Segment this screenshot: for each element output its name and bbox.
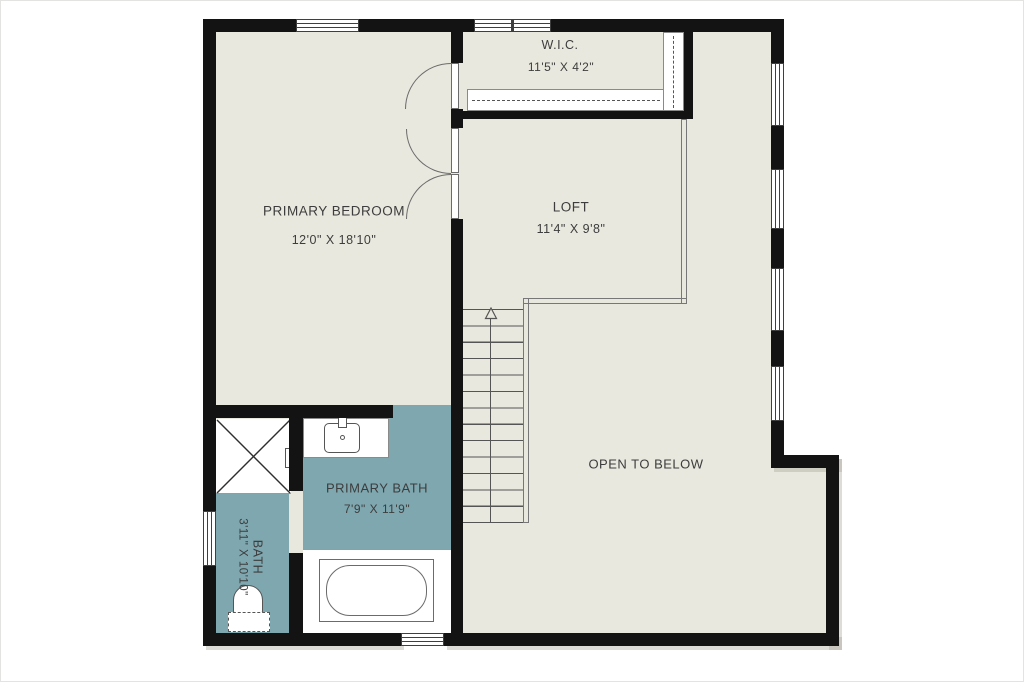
- window-wic-top: [474, 19, 551, 32]
- wall-bedroom-east-a: [451, 32, 463, 63]
- loft-railing-east: [681, 119, 687, 304]
- double-door-leaf-top: [451, 128, 459, 173]
- loft-label: LOFT: [553, 200, 590, 215]
- window-bottom: [401, 633, 444, 646]
- wall-bottom-left: [203, 633, 401, 646]
- bath-label-group: BATH 3'11" X 10'10": [236, 518, 265, 596]
- wall-right-lower: [826, 455, 839, 646]
- wall-left-upper: [203, 19, 216, 511]
- stairs: [463, 309, 523, 523]
- primary-bath-dims: 7'9" X 11'9": [344, 502, 410, 516]
- window-bath-left: [203, 511, 216, 566]
- wall-wic-east: [684, 32, 693, 111]
- double-door-leaf-bottom: [451, 174, 459, 219]
- primary-bath-label: PRIMARY BATH: [326, 481, 428, 496]
- primary-bedroom-label: PRIMARY BEDROOM: [263, 204, 405, 219]
- wall-right-seg4: [771, 331, 784, 366]
- bathtub-basin: [326, 565, 427, 616]
- bath-dims: 3'11" X 10'10": [236, 518, 250, 596]
- wall-right-seg1: [771, 32, 784, 63]
- wall-bottom-right: [444, 633, 839, 646]
- window-right-1: [771, 63, 784, 126]
- sink-drain: [340, 435, 345, 440]
- closet-shelf-vertical: [663, 32, 684, 111]
- open-to-below-label: OPEN TO BELOW: [588, 457, 703, 472]
- primary-bedroom-dims: 12'0" X 18'10": [292, 233, 377, 247]
- wic-label: W.I.C.: [541, 38, 578, 52]
- window-mullion: [511, 20, 514, 31]
- wall-right-seg3: [771, 229, 784, 268]
- loft-dims: 11'4" X 9'8": [537, 222, 606, 236]
- floor-bumpout: [771, 468, 826, 633]
- stairs-direction-line: [490, 319, 491, 523]
- wall-bedroom-east-c: [451, 219, 463, 633]
- wall-bedroom-bath-divider: [203, 405, 393, 418]
- shower: [216, 419, 291, 494]
- wall-wic-south: [451, 111, 693, 119]
- window-right-4: [771, 366, 784, 421]
- wall-right-seg2: [771, 126, 784, 169]
- bath-label: BATH: [250, 518, 265, 596]
- window-bedroom-top: [296, 19, 359, 32]
- window-right-2: [771, 169, 784, 229]
- window-right-3: [771, 268, 784, 331]
- toilet-tank: [228, 612, 270, 632]
- wic-door-leaf: [451, 63, 459, 109]
- wall-bath-divider-upper: [289, 418, 303, 491]
- stairs-up-arrow-icon: [484, 307, 498, 320]
- stair-railing: [523, 298, 529, 523]
- wic-dims: 11'5" X 4'2": [528, 60, 594, 74]
- floor-plan-canvas: PRIMARY BEDROOM 12'0" X 18'10" W.I.C. 11…: [0, 0, 1024, 682]
- closet-rod-line: [472, 100, 660, 101]
- shower-x-icon: [216, 419, 291, 494]
- closet-shelf-horizontal: [467, 89, 664, 111]
- loft-railing-south: [523, 298, 687, 304]
- closet-rod-line-vertical: [673, 36, 674, 108]
- wall-right-seg5: [771, 421, 784, 458]
- wall-bath-divider-lower: [289, 553, 303, 633]
